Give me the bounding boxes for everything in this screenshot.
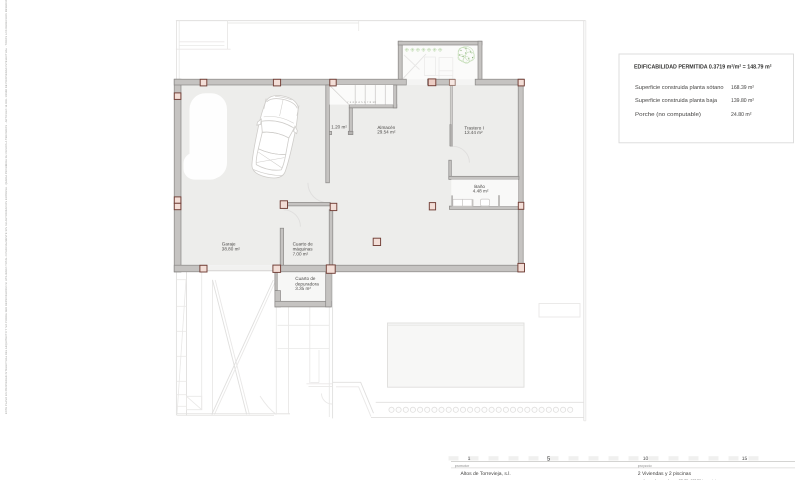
svg-text:7.00 m²: 7.00 m²: [293, 252, 309, 257]
svg-text:proyecto: proyecto: [638, 464, 652, 468]
svg-text:/ 1 2 3 4 5 6 7 8 10: / 1 2 3 4 5 6 7 8 10: [348, 101, 377, 104]
svg-text:Altos de Torrevieja, s.l.: Altos de Torrevieja, s.l.: [461, 471, 511, 477]
svg-text:3.35 m²: 3.35 m²: [295, 286, 311, 291]
svg-text:1: 1: [468, 456, 471, 462]
svg-text:168.39 m²: 168.39 m²: [731, 85, 754, 91]
svg-text:4.48 m²: 4.48 m²: [473, 189, 489, 194]
svg-text:1.20 m²: 1.20 m²: [331, 124, 347, 129]
svg-text:promotor: promotor: [455, 464, 470, 468]
svg-text:24.80 m²: 24.80 m²: [731, 112, 752, 118]
svg-text:Superficie construida planta b: Superficie construida planta baja: [635, 98, 718, 104]
svg-text:139.80 m²: 139.80 m²: [731, 98, 754, 104]
svg-text:2 Viviendas y 2 piscinas: 2 Viviendas y 2 piscinas: [638, 471, 692, 477]
svg-text:Porche (no computable): Porche (no computable): [635, 112, 701, 118]
svg-text:EDIFICABILIDAD PERMITIDA 0.371: EDIFICABILIDAD PERMITIDA 0.3719 m²/m² = …: [634, 63, 772, 70]
svg-text:13.44 m²: 13.44 m²: [464, 130, 483, 135]
svg-text:29.54 m²: 29.54 m²: [377, 130, 396, 135]
svg-text:Superficie construida planta s: Superficie construida planta sótano: [635, 84, 724, 91]
svg-text:10: 10: [643, 456, 649, 462]
svg-text:15: 15: [742, 456, 748, 462]
svg-text:38.80 m²: 38.80 m²: [222, 247, 241, 252]
svg-text:ESTE PLANO ES PROPIEDAD INTELE: ESTE PLANO ES PROPIEDAD INTELECTUAL DEL …: [5, 0, 8, 414]
